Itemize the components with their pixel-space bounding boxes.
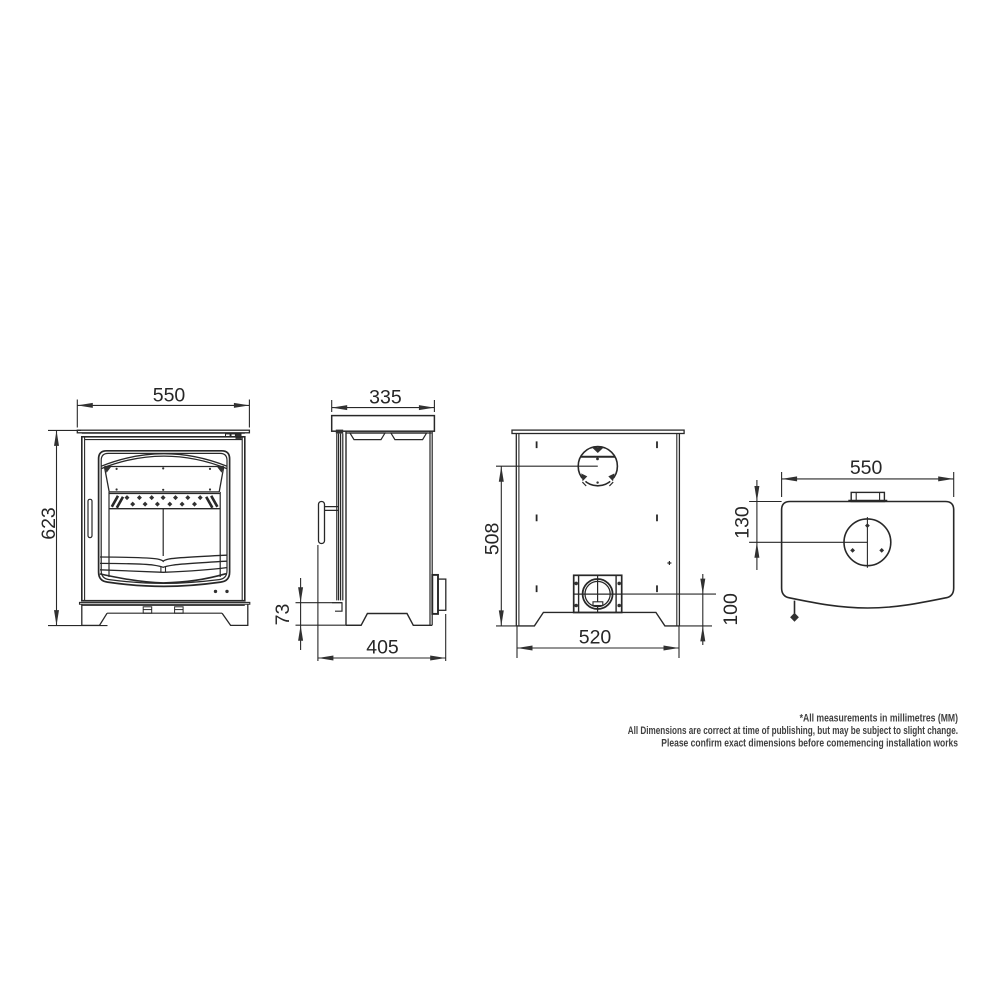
- svg-text:405: 405: [366, 637, 399, 659]
- svg-text:130: 130: [732, 506, 754, 539]
- svg-text:520: 520: [579, 627, 612, 649]
- svg-text:550: 550: [850, 457, 883, 479]
- svg-text:550: 550: [153, 385, 186, 407]
- svg-text:*All measurements in millimetr: *All measurements in millimetres (MM): [800, 712, 959, 724]
- svg-text:Please confirm exact dimension: Please confirm exact dimensions before c…: [661, 738, 958, 750]
- svg-text:335: 335: [369, 387, 402, 409]
- svg-text:73: 73: [272, 604, 294, 626]
- svg-text:508: 508: [482, 523, 504, 556]
- svg-text:623: 623: [38, 507, 60, 540]
- svg-text:100: 100: [720, 593, 742, 626]
- svg-text:All Dimensions are correct at: All Dimensions are correct at time of pu…: [628, 725, 958, 737]
